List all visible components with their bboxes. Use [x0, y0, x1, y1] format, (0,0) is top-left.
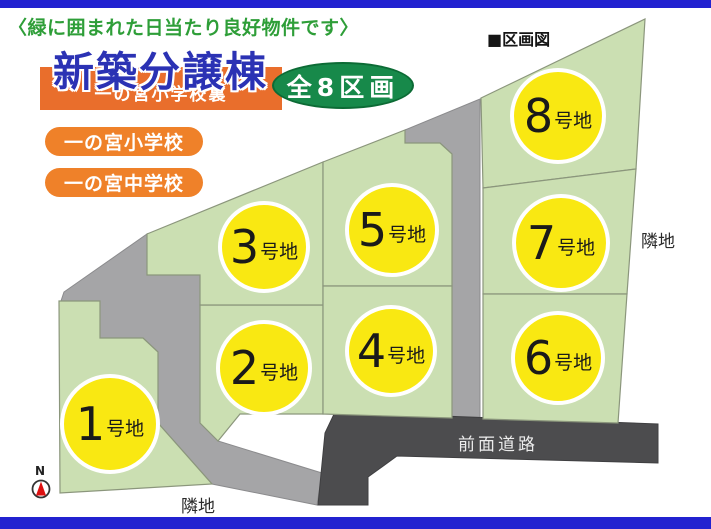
lot-5-label: 5号地: [358, 207, 426, 253]
adjacent-land-label-right: 隣地: [641, 227, 675, 252]
school-tag-elementary: 一の宮小学校: [45, 127, 203, 156]
catch-copy: 〈緑に囲まれた日当たり良好物件です〉: [8, 13, 359, 40]
total-lots-badge: 全8区画: [272, 62, 414, 109]
lot-3-label: 3号地: [230, 224, 298, 270]
lot-1-label: 1号地: [76, 401, 144, 447]
compass-north-label: N: [35, 464, 45, 478]
map-section-label: ■区画図: [487, 26, 550, 50]
lot-7-label: 7号地: [527, 220, 595, 266]
front-road-label: 前面道路: [458, 430, 538, 455]
lot-2-label: 2号地: [230, 345, 298, 391]
front-road-shape: [318, 412, 658, 505]
lot-8-label: 8号地: [524, 93, 592, 139]
flyer-page: 〈緑に囲まれた日当たり良好物件です〉 一の宮小学校裏 新築分譲棟 全8区画 一の…: [0, 0, 711, 529]
compass-icon: [33, 481, 50, 498]
main-title: 新築分譲棟: [53, 38, 268, 98]
lot-6-label: 6号地: [524, 335, 592, 381]
adjacent-land-label-bottom: 隣地: [181, 492, 215, 517]
lot-4-label: 4号地: [357, 328, 425, 374]
school-tag-junior-high: 一の宮中学校: [45, 168, 203, 197]
